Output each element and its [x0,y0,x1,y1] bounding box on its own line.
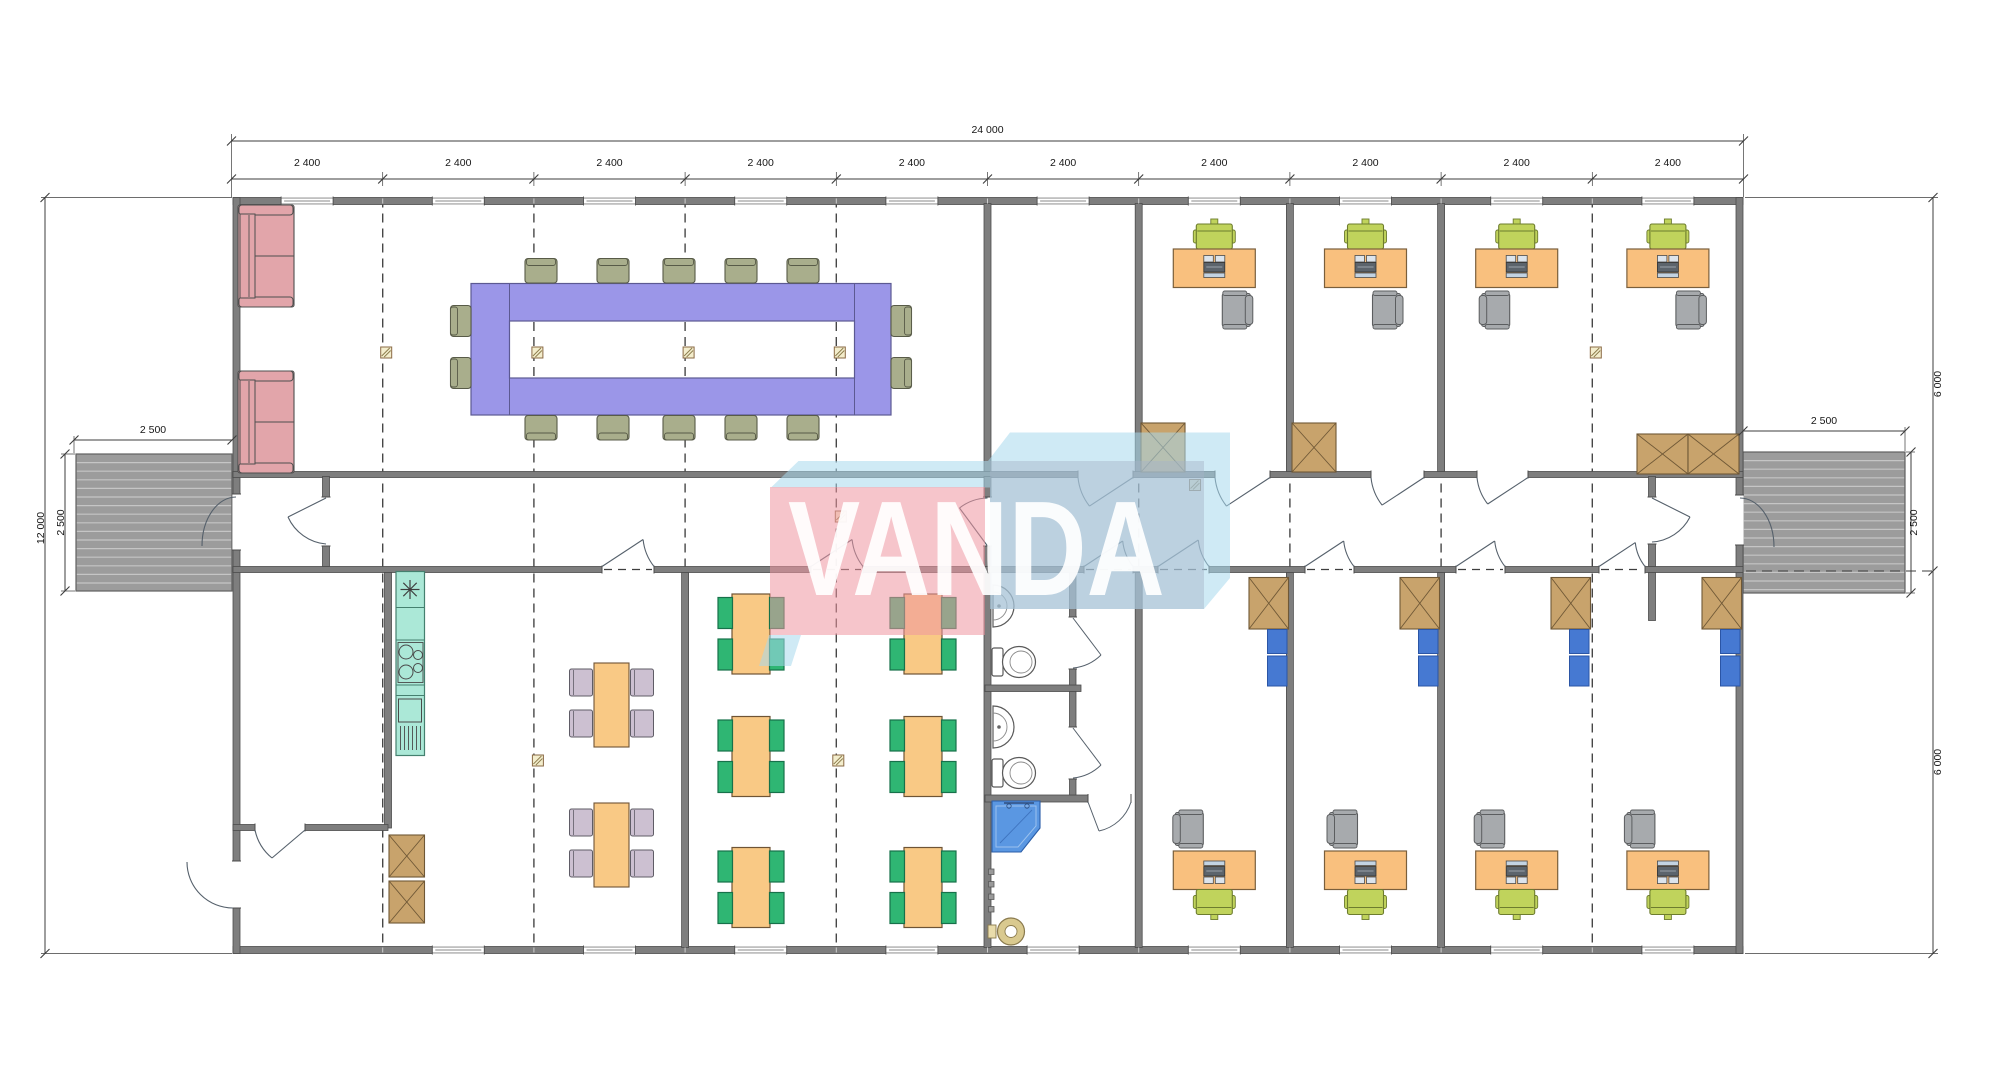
svg-text:2 400: 2 400 [445,157,471,169]
svg-text:VANDA: VANDA [788,472,1165,624]
svg-text:2 500: 2 500 [1908,509,1920,535]
svg-text:2 400: 2 400 [1655,157,1681,169]
svg-text:2 400: 2 400 [1201,157,1227,169]
svg-text:2 400: 2 400 [596,157,622,169]
svg-text:2 500: 2 500 [55,509,67,535]
svg-text:2 500: 2 500 [1811,415,1837,427]
svg-text:2 400: 2 400 [748,157,774,169]
svg-text:2 400: 2 400 [294,157,320,169]
svg-text:6 000: 6 000 [1932,749,1944,775]
svg-text:2 400: 2 400 [1050,157,1076,169]
svg-text:2 500: 2 500 [140,424,166,436]
svg-text:24 000: 24 000 [971,124,1003,136]
svg-text:6 000: 6 000 [1932,371,1944,397]
svg-text:2 400: 2 400 [1352,157,1378,169]
svg-text:12 000: 12 000 [35,512,47,544]
svg-text:2 400: 2 400 [899,157,925,169]
svg-text:2 400: 2 400 [1504,157,1530,169]
